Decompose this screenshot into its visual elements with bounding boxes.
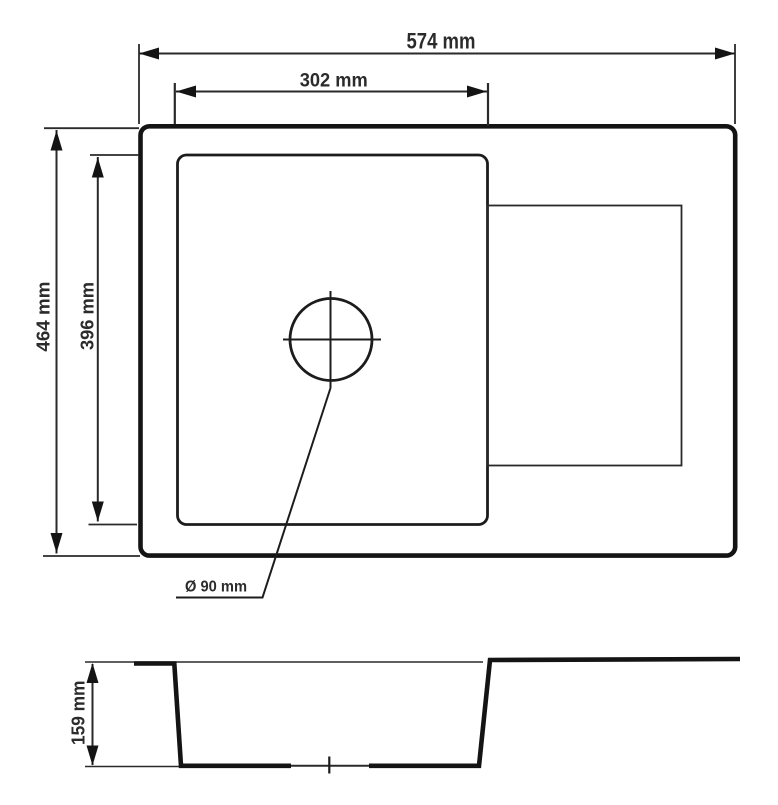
- svg-text:159 mm: 159 mm: [67, 681, 88, 746]
- svg-text:396 mm: 396 mm: [76, 282, 97, 350]
- svg-text:464 mm: 464 mm: [33, 282, 54, 352]
- svg-text:574 mm: 574 mm: [407, 28, 476, 53]
- svg-text:302 mm: 302 mm: [300, 69, 368, 91]
- svg-text:Ø 90 mm: Ø 90 mm: [185, 579, 247, 596]
